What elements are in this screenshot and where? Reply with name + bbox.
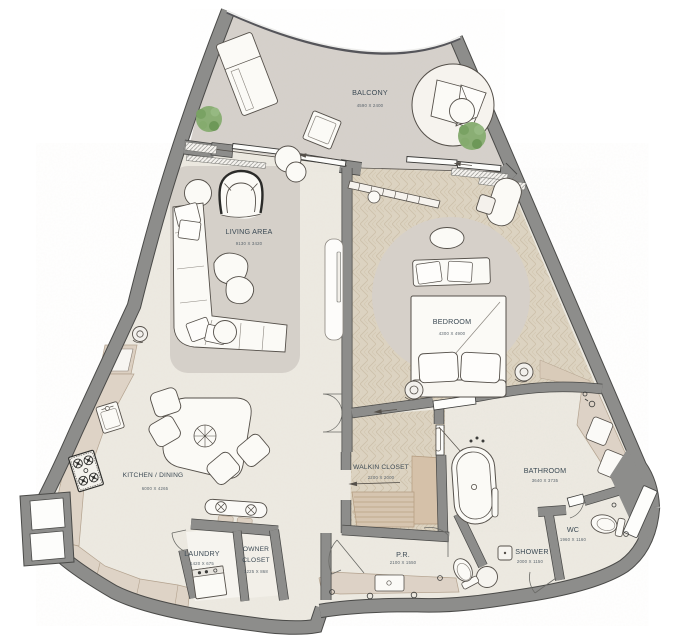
svg-text:WALKIN CLOSET: WALKIN CLOSET <box>353 464 409 471</box>
svg-text:1225 X 868: 1225 X 868 <box>244 569 268 574</box>
svg-text:CLOSET: CLOSET <box>242 557 270 564</box>
svg-text:2000 X 1150: 2000 X 1150 <box>517 559 544 564</box>
svg-text:1960 X 1160: 1960 X 1160 <box>560 537 587 542</box>
svg-text:1420 X 675: 1420 X 675 <box>190 561 214 566</box>
svg-text:4300 X 4900: 4300 X 4900 <box>439 331 466 336</box>
svg-text:6000 X 4265: 6000 X 4265 <box>142 486 169 491</box>
svg-text:SHOWER: SHOWER <box>515 547 549 556</box>
svg-text:2200 X 2000: 2200 X 2000 <box>368 475 395 480</box>
svg-text:KITCHEN / DINING: KITCHEN / DINING <box>123 472 184 479</box>
svg-text:P.R.: P.R. <box>396 550 410 559</box>
svg-text:4590 X 2400: 4590 X 2400 <box>357 103 384 108</box>
svg-text:9130 X 3420: 9130 X 3420 <box>236 241 263 246</box>
svg-text:BEDROOM: BEDROOM <box>433 317 472 326</box>
svg-text:LIVING AREA: LIVING AREA <box>226 227 273 236</box>
svg-text:BATHROOM: BATHROOM <box>524 466 567 475</box>
svg-text:OWNER: OWNER <box>243 546 269 553</box>
svg-text:3640 X 3735: 3640 X 3735 <box>532 478 559 483</box>
svg-text:LAUNDRY: LAUNDRY <box>184 549 220 558</box>
svg-text:BALCONY: BALCONY <box>352 88 388 97</box>
svg-text:WC: WC <box>567 525 579 534</box>
svg-text:2100 X 1550: 2100 X 1550 <box>390 560 417 565</box>
